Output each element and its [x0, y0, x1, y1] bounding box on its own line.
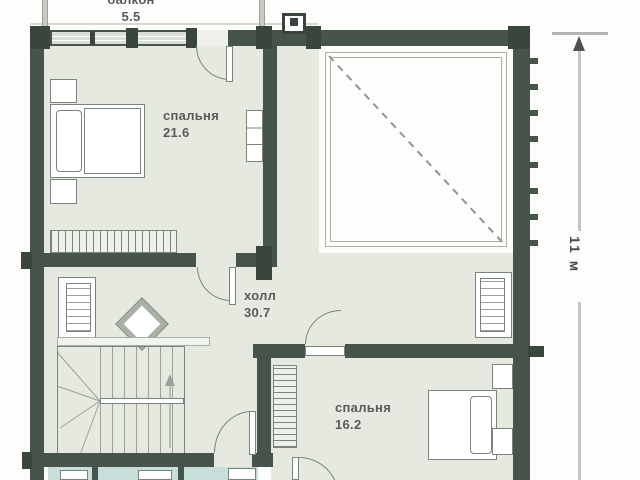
- corner-log-cross: [30, 26, 50, 49]
- balcony-area: 5.5: [122, 9, 141, 24]
- bottom-fixture: [228, 468, 256, 480]
- mid-wall-lower: [345, 344, 530, 358]
- log-end: [529, 136, 538, 142]
- bedroom-bottom-label: спальня 16.2: [335, 400, 391, 434]
- corridor-door-opening: [214, 453, 252, 467]
- corner-log-cross: [126, 28, 138, 48]
- log-end: [529, 162, 538, 168]
- bedroom-bottom-left-wall: [257, 344, 271, 460]
- nightstand: [492, 364, 513, 389]
- log-end: [529, 58, 538, 64]
- log-end: [529, 240, 538, 246]
- door-leaf: [226, 46, 233, 82]
- door-leaf: [305, 346, 345, 356]
- hall-name: холл: [244, 288, 276, 303]
- corner-log-cross: [186, 28, 197, 48]
- door-leaf: [249, 411, 256, 455]
- bed-top-mattress-line: [84, 108, 141, 174]
- balcony-label: балкон 5.5: [100, 0, 162, 26]
- log-end: [529, 84, 538, 90]
- mid-wall-upper: [30, 253, 196, 267]
- top-wall-window: [52, 32, 188, 44]
- balcony-edge-line: [30, 23, 318, 25]
- bed-bottom-pillow: [470, 396, 492, 454]
- stair-upper-flight: [100, 347, 184, 398]
- balcony-name: балкон: [107, 0, 154, 7]
- radiator-cabinet: [50, 230, 177, 253]
- bottom-fixture: [138, 470, 172, 480]
- window-divider: [92, 467, 98, 480]
- door-leaf: [229, 267, 236, 305]
- corner-log-cross: [508, 26, 530, 49]
- wall-junction: [21, 252, 32, 269]
- nightstand: [50, 179, 77, 204]
- dimension-label: 11 м: [566, 236, 584, 273]
- window-mullion: [90, 31, 95, 45]
- corner-log-cross: [306, 26, 321, 49]
- bottom-fixture: [60, 470, 88, 480]
- door-leaf: [292, 457, 299, 480]
- log-end: [529, 188, 538, 194]
- wardrobe-bottom: [273, 365, 297, 448]
- armchair-left-cushion: [66, 283, 91, 332]
- wardrobe-top: [246, 110, 263, 162]
- bedroom-bottom-area: 16.2: [335, 417, 362, 432]
- balcony-door-opening: [196, 30, 228, 46]
- wall-junction: [22, 452, 32, 469]
- dimension-line-lower: [578, 302, 581, 480]
- armchair-right-cushion: [480, 278, 505, 332]
- log-end: [529, 110, 538, 116]
- chimney-flue: [290, 18, 298, 26]
- hall-label: холл 30.7: [244, 288, 276, 322]
- nightstand: [492, 428, 513, 455]
- bedroom-top-label: спальня 21.6: [163, 108, 219, 142]
- floor-plan: балкон 5.5 спальня 21.6 холл 30.7 спальн…: [0, 0, 640, 480]
- dimension-cap: [552, 32, 608, 35]
- open-space-railing-inner: [330, 57, 502, 242]
- gallery-strip-floor: [277, 46, 319, 253]
- bedroom-top-right-wall: [263, 30, 277, 267]
- stair-top-rail: [57, 337, 210, 346]
- right-wall: [513, 30, 530, 480]
- dimension-arrow-icon: [573, 36, 585, 51]
- log-end: [529, 214, 538, 220]
- bedroom-bottom-name: спальня: [335, 400, 391, 415]
- bedroom-top-area: 21.6: [163, 125, 190, 140]
- hall-area: 30.7: [244, 305, 271, 320]
- bedroom-top-name: спальня: [163, 108, 219, 123]
- dimension-line-upper: [578, 51, 581, 231]
- corner-log-cross: [256, 26, 272, 49]
- nightstand: [50, 79, 77, 103]
- window-divider: [178, 467, 184, 480]
- wall-junction: [256, 246, 272, 280]
- bed-top-pillow: [56, 110, 82, 172]
- log-end: [528, 346, 544, 357]
- stair-lower-flight: [100, 404, 184, 454]
